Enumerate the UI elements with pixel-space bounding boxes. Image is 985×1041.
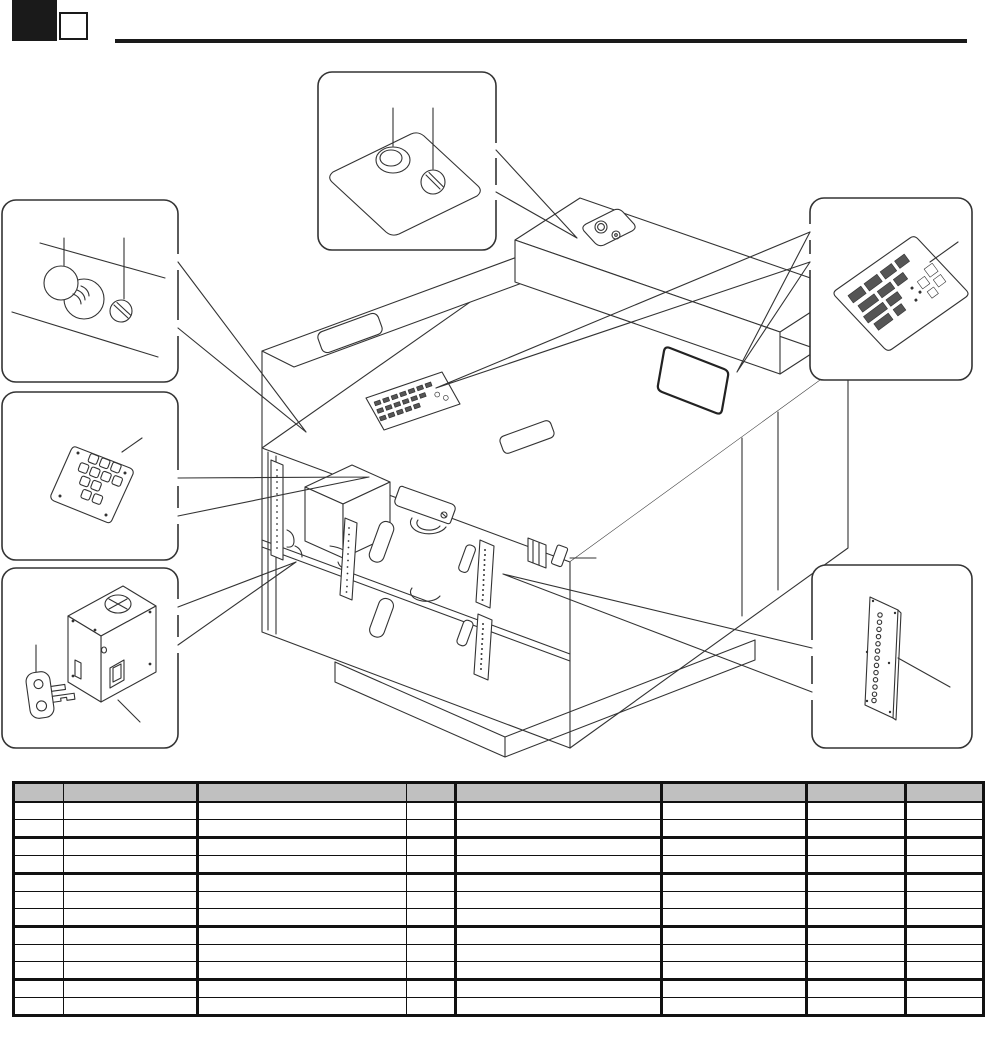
table-cell — [456, 909, 662, 927]
table-cell — [63, 962, 197, 980]
table-cell — [906, 838, 984, 856]
table-cell — [661, 945, 806, 962]
table-cell — [456, 945, 662, 962]
table-cell — [456, 927, 662, 945]
table-cell — [807, 892, 906, 909]
table-cell — [63, 927, 197, 945]
table-cell — [406, 909, 456, 927]
table-cell — [807, 856, 906, 874]
table-cell — [456, 856, 662, 874]
table-cell — [906, 998, 984, 1016]
table-cell — [906, 980, 984, 998]
table-cell — [406, 838, 456, 856]
table-cell — [456, 874, 662, 892]
table-cell — [197, 820, 406, 838]
table-cell — [63, 998, 197, 1016]
table-cell — [14, 909, 64, 927]
table-cell — [661, 998, 806, 1016]
table-row — [14, 820, 984, 838]
table-cell — [906, 856, 984, 874]
table-cell — [63, 892, 197, 909]
table-cell — [63, 820, 197, 838]
table-cell — [456, 998, 662, 1016]
manual-page — [0, 0, 985, 1041]
table-cell — [456, 802, 662, 820]
table-cell — [906, 892, 984, 909]
table-cell — [456, 838, 662, 856]
table-row — [14, 909, 984, 927]
led-strip-icon — [458, 540, 494, 608]
table-row — [14, 998, 984, 1016]
table-header-cell — [661, 783, 806, 803]
table-cell — [807, 838, 906, 856]
table-cell — [661, 874, 806, 892]
table-cell — [14, 980, 64, 998]
table-cell — [661, 962, 806, 980]
table-cell — [406, 892, 456, 909]
table-cell — [406, 856, 456, 874]
parts-table-grid — [12, 781, 985, 1017]
table-row — [14, 892, 984, 909]
parts-diagram — [0, 0, 985, 778]
table-cell — [661, 909, 806, 927]
table-cell — [807, 802, 906, 820]
table-cell — [197, 962, 406, 980]
table-cell — [906, 927, 984, 945]
table-cell — [807, 874, 906, 892]
table-cell — [906, 909, 984, 927]
table-cell — [63, 909, 197, 927]
table-row — [14, 962, 984, 980]
table-cell — [63, 838, 197, 856]
table-header-cell — [406, 783, 456, 803]
table-cell — [14, 927, 64, 945]
table-header-cell — [197, 783, 406, 803]
table-cell — [661, 802, 806, 820]
table-cell — [661, 892, 806, 909]
table-cell — [197, 856, 406, 874]
table-cell — [63, 945, 197, 962]
table-cell — [661, 838, 806, 856]
table-row — [14, 927, 984, 945]
table-row — [14, 874, 984, 892]
table-cell — [63, 856, 197, 874]
table-row — [14, 856, 984, 874]
table-cell — [406, 998, 456, 1016]
table-cell — [906, 820, 984, 838]
table-cell — [406, 820, 456, 838]
parts-table — [12, 781, 985, 1017]
table-cell — [14, 874, 64, 892]
table-cell — [807, 909, 906, 927]
table-cell — [807, 998, 906, 1016]
table-cell — [807, 927, 906, 945]
table-cell — [406, 927, 456, 945]
table-cell — [807, 980, 906, 998]
table-row — [14, 802, 984, 820]
table-cell — [661, 856, 806, 874]
table-cell — [807, 820, 906, 838]
table-cell — [406, 980, 456, 998]
table-cell — [14, 856, 64, 874]
table-cell — [197, 802, 406, 820]
table-header-cell — [14, 783, 64, 803]
table-cell — [456, 892, 662, 909]
table-cell — [406, 962, 456, 980]
table-cell — [14, 998, 64, 1016]
table-cell — [406, 874, 456, 892]
table-cell — [906, 802, 984, 820]
table-cell — [14, 892, 64, 909]
table-row — [14, 945, 984, 962]
table-cell — [197, 980, 406, 998]
table-cell — [63, 874, 197, 892]
table-cell — [456, 820, 662, 838]
table-cell — [197, 927, 406, 945]
table-cell — [197, 998, 406, 1016]
table-header-cell — [906, 783, 984, 803]
table-cell — [14, 962, 64, 980]
table-cell — [197, 909, 406, 927]
table-header-cell — [807, 783, 906, 803]
table-cell — [661, 927, 806, 945]
table-cell — [807, 945, 906, 962]
table-header-cell — [63, 783, 197, 803]
table-cell — [63, 980, 197, 998]
table-cell — [63, 802, 197, 820]
table-cell — [14, 838, 64, 856]
round-knob-icon — [44, 266, 78, 300]
table-cell — [406, 945, 456, 962]
table-cell — [661, 980, 806, 998]
table-cell — [456, 980, 662, 998]
table-cell — [661, 820, 806, 838]
table-cell — [807, 962, 906, 980]
table-row — [14, 838, 984, 856]
table-cell — [906, 874, 984, 892]
table-cell — [456, 962, 662, 980]
table-cell — [197, 892, 406, 909]
table-cell — [906, 945, 984, 962]
table-cell — [906, 962, 984, 980]
table-cell — [197, 945, 406, 962]
table-cell — [14, 945, 64, 962]
table-cell — [197, 874, 406, 892]
table-row — [14, 980, 984, 998]
table-header-cell — [456, 783, 662, 803]
table-cell — [14, 802, 64, 820]
table-cell — [14, 820, 64, 838]
table-cell — [197, 838, 406, 856]
table-cell — [406, 802, 456, 820]
